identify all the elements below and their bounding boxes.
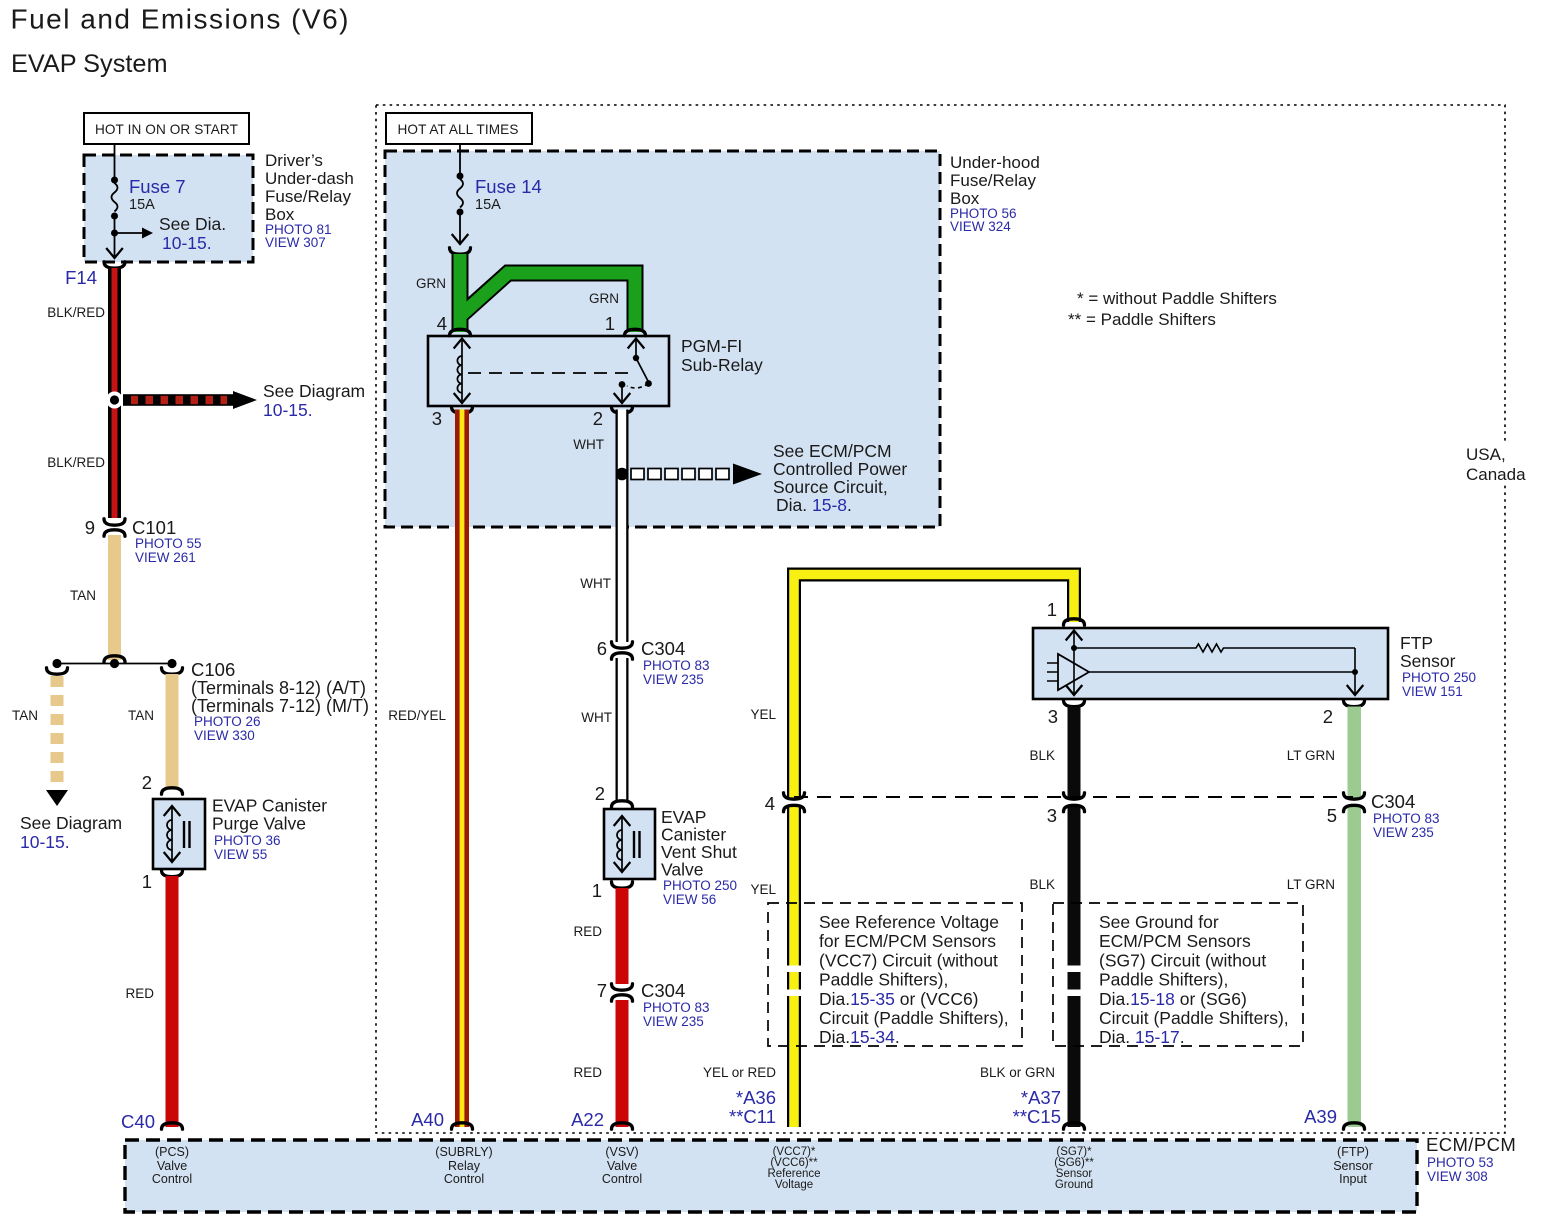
svg-text:Controlled Power: Controlled Power [773, 459, 907, 479]
svg-text:C40: C40 [121, 1111, 155, 1132]
svg-text:YEL or RED: YEL or RED [703, 1065, 776, 1080]
svg-text:YEL: YEL [750, 882, 776, 897]
svg-text:ECM/PCM Sensors: ECM/PCM Sensors [1099, 931, 1251, 951]
svg-text:PHOTO 83: PHOTO 83 [1373, 811, 1440, 826]
svg-text:** = Paddle Shifters: ** = Paddle Shifters [1068, 310, 1216, 329]
svg-text:Dia.15-18 or (SG6): Dia.15-18 or (SG6) [1099, 989, 1247, 1009]
svg-text:RED: RED [125, 986, 154, 1001]
svg-text:* = without Paddle Shifters: * = without Paddle Shifters [1077, 289, 1277, 308]
svg-text:C106: C106 [191, 659, 235, 680]
svg-text:PHOTO 83: PHOTO 83 [643, 658, 710, 673]
svg-text:Valve: Valve [661, 860, 703, 880]
svg-text:A22: A22 [571, 1109, 604, 1130]
svg-text:Sensor: Sensor [1400, 651, 1456, 671]
svg-text:(SG7) Circuit (without: (SG7) Circuit (without [1099, 950, 1266, 970]
svg-text:PHOTO 53: PHOTO 53 [1427, 1155, 1494, 1170]
svg-text:Voltage: Voltage [775, 1179, 813, 1191]
svg-text:PHOTO 250: PHOTO 250 [1402, 670, 1476, 685]
svg-text:Control: Control [152, 1172, 192, 1186]
svg-text:Dia. 15-17.: Dia. 15-17. [1099, 1027, 1185, 1047]
svg-text:HOT AT ALL TIMES: HOT AT ALL TIMES [398, 122, 519, 137]
svg-text:WHT: WHT [573, 437, 604, 452]
svg-text:Circuit (Paddle Shifters),: Circuit (Paddle Shifters), [1099, 1008, 1289, 1028]
svg-text:See ECM/PCM: See ECM/PCM [773, 441, 892, 461]
svg-text:PHOTO 55: PHOTO 55 [135, 536, 202, 551]
svg-text:C304: C304 [641, 638, 685, 659]
svg-text:VIEW 235: VIEW 235 [643, 1014, 704, 1029]
svg-text:7: 7 [597, 980, 607, 1001]
svg-text:GRN: GRN [416, 276, 446, 291]
svg-text:EVAP Canister: EVAP Canister [212, 796, 327, 816]
svg-text:RED/YEL: RED/YEL [388, 708, 446, 723]
svg-text:2: 2 [595, 783, 605, 804]
svg-text:HOT IN ON OR START: HOT IN ON OR START [95, 122, 238, 137]
svg-text:Dia.15-34.: Dia.15-34. [819, 1027, 900, 1047]
svg-text:TAN: TAN [128, 708, 154, 723]
svg-text:1: 1 [1047, 599, 1057, 620]
svg-text:Control: Control [444, 1172, 484, 1186]
svg-text:C304: C304 [641, 980, 685, 1001]
svg-text:YEL: YEL [750, 707, 776, 722]
svg-text:Fuse/Relay: Fuse/Relay [950, 171, 1036, 190]
svg-text:Fuse 14: Fuse 14 [475, 176, 542, 197]
svg-text:Fuse 7: Fuse 7 [129, 176, 186, 197]
svg-text:Relay: Relay [448, 1159, 481, 1173]
svg-text:RED: RED [573, 1065, 602, 1080]
svg-text:See Diagram: See Diagram [263, 381, 365, 401]
svg-text:Dia.15-35 or (VCC6): Dia.15-35 or (VCC6) [819, 989, 979, 1009]
svg-text:2: 2 [593, 408, 603, 429]
svg-text:FTP: FTP [1400, 633, 1433, 653]
svg-text:PHOTO 250: PHOTO 250 [663, 878, 737, 893]
svg-text:BLK/RED: BLK/RED [47, 305, 105, 320]
svg-text:(VSV): (VSV) [605, 1145, 638, 1159]
svg-text:Ground: Ground [1055, 1179, 1093, 1191]
svg-text:Under-hood: Under-hood [950, 153, 1040, 172]
svg-text:BLK: BLK [1029, 748, 1055, 763]
svg-text:3: 3 [1048, 706, 1058, 727]
svg-text:LT GRN: LT GRN [1287, 748, 1335, 763]
svg-text:Valve: Valve [607, 1159, 637, 1173]
svg-text:Purge Valve: Purge Valve [212, 814, 306, 834]
svg-text:Paddle Shifters),: Paddle Shifters), [819, 970, 948, 990]
svg-text:PHOTO 36: PHOTO 36 [214, 833, 281, 848]
svg-text:15A: 15A [129, 197, 155, 213]
svg-text:4: 4 [765, 793, 775, 814]
svg-text:*A36: *A36 [736, 1087, 776, 1108]
svg-text:GRN: GRN [589, 291, 619, 306]
svg-text:4: 4 [437, 313, 447, 334]
svg-text:WHT: WHT [581, 710, 612, 725]
svg-text:(Terminals 7-12) (M/T): (Terminals 7-12) (M/T) [191, 696, 369, 716]
svg-text:VIEW 324: VIEW 324 [950, 219, 1011, 234]
svg-text:(PCS): (PCS) [155, 1145, 189, 1159]
svg-text:5: 5 [1327, 805, 1337, 826]
svg-text:PGM-FI: PGM-FI [681, 336, 742, 356]
svg-text:*A37: *A37 [1021, 1087, 1061, 1108]
svg-text:VIEW 235: VIEW 235 [643, 672, 704, 687]
svg-text:6: 6 [597, 638, 607, 659]
svg-text:ECM/PCM: ECM/PCM [1426, 1134, 1516, 1155]
svg-text:(VCC7) Circuit (without: (VCC7) Circuit (without [819, 950, 998, 970]
svg-text:VIEW 55: VIEW 55 [214, 847, 267, 862]
svg-text:VIEW 261: VIEW 261 [135, 550, 196, 565]
svg-text:BLK or GRN: BLK or GRN [980, 1065, 1055, 1080]
svg-text:Source Circuit,: Source Circuit, [773, 477, 888, 497]
svg-text:Dia. 15-8.: Dia. 15-8. [776, 495, 852, 515]
svg-text:See Reference Voltage: See Reference Voltage [819, 912, 999, 932]
svg-text:Sub-Relay: Sub-Relay [681, 355, 763, 375]
svg-text:VIEW 330: VIEW 330 [194, 728, 255, 743]
svg-text:Under-dash: Under-dash [265, 169, 354, 188]
svg-text:TAN: TAN [12, 708, 38, 723]
svg-text:VIEW 307: VIEW 307 [265, 235, 326, 250]
svg-text:PHOTO 83: PHOTO 83 [643, 1000, 710, 1015]
svg-text:**C11: **C11 [729, 1106, 776, 1127]
svg-text:RED: RED [573, 924, 602, 939]
svg-text:1: 1 [592, 880, 602, 901]
svg-text:Canada: Canada [1466, 465, 1526, 484]
svg-text:(SUBRLY): (SUBRLY) [435, 1145, 492, 1159]
svg-text:Sensor: Sensor [1333, 1159, 1373, 1173]
svg-text:(FTP): (FTP) [1337, 1145, 1369, 1159]
svg-text:Circuit (Paddle Shifters),: Circuit (Paddle Shifters), [819, 1008, 1009, 1028]
svg-text:VIEW 151: VIEW 151 [1402, 684, 1463, 699]
svg-text:Valve: Valve [157, 1159, 187, 1173]
svg-text:Control: Control [602, 1172, 642, 1186]
svg-text:C101: C101 [132, 517, 176, 538]
svg-text:**C15: **C15 [1013, 1106, 1061, 1127]
svg-text:10-15.: 10-15. [162, 233, 212, 253]
svg-text:Driver’s: Driver’s [265, 151, 323, 170]
svg-text:BLK: BLK [1029, 877, 1055, 892]
svg-text:BLK/RED: BLK/RED [47, 455, 105, 470]
svg-text:Fuel and Emissions (V6): Fuel and Emissions (V6) [11, 4, 351, 35]
svg-text:VIEW 235: VIEW 235 [1373, 825, 1434, 840]
svg-text:F14: F14 [65, 267, 97, 288]
svg-text:USA,: USA, [1466, 445, 1506, 464]
svg-text:A40: A40 [411, 1109, 444, 1130]
svg-text:VIEW 56: VIEW 56 [663, 892, 716, 907]
svg-text:10-15.: 10-15. [263, 400, 313, 420]
svg-text:LT GRN: LT GRN [1287, 877, 1335, 892]
svg-text:for ECM/PCM Sensors: for ECM/PCM Sensors [819, 931, 996, 951]
svg-text:WHT: WHT [580, 576, 611, 591]
svg-text:1: 1 [142, 871, 152, 892]
svg-text:9: 9 [85, 517, 95, 538]
svg-text:TAN: TAN [70, 588, 96, 603]
svg-text:PHOTO 26: PHOTO 26 [194, 714, 261, 729]
svg-text:15A: 15A [475, 197, 501, 213]
svg-text:10-15.: 10-15. [20, 832, 70, 852]
svg-text:(Terminals 8-12) (A/T): (Terminals 8-12) (A/T) [191, 678, 366, 698]
svg-text:2: 2 [142, 772, 152, 793]
svg-text:Paddle Shifters),: Paddle Shifters), [1099, 970, 1228, 990]
svg-text:See Diagram: See Diagram [20, 813, 122, 833]
svg-text:1: 1 [605, 313, 615, 334]
svg-text:3: 3 [1047, 805, 1057, 826]
svg-text:VIEW 308: VIEW 308 [1427, 1169, 1488, 1184]
svg-text:Input: Input [1339, 1172, 1367, 1186]
svg-text:3: 3 [432, 408, 442, 429]
svg-text:2: 2 [1323, 706, 1333, 727]
svg-text:See Ground for: See Ground for [1099, 912, 1219, 932]
svg-text:A39: A39 [1304, 1106, 1337, 1127]
svg-text:C304: C304 [1371, 791, 1415, 812]
svg-text:See Dia.: See Dia. [159, 214, 226, 234]
svg-text:Fuse/Relay: Fuse/Relay [265, 187, 351, 206]
svg-text:EVAP System: EVAP System [11, 50, 168, 78]
